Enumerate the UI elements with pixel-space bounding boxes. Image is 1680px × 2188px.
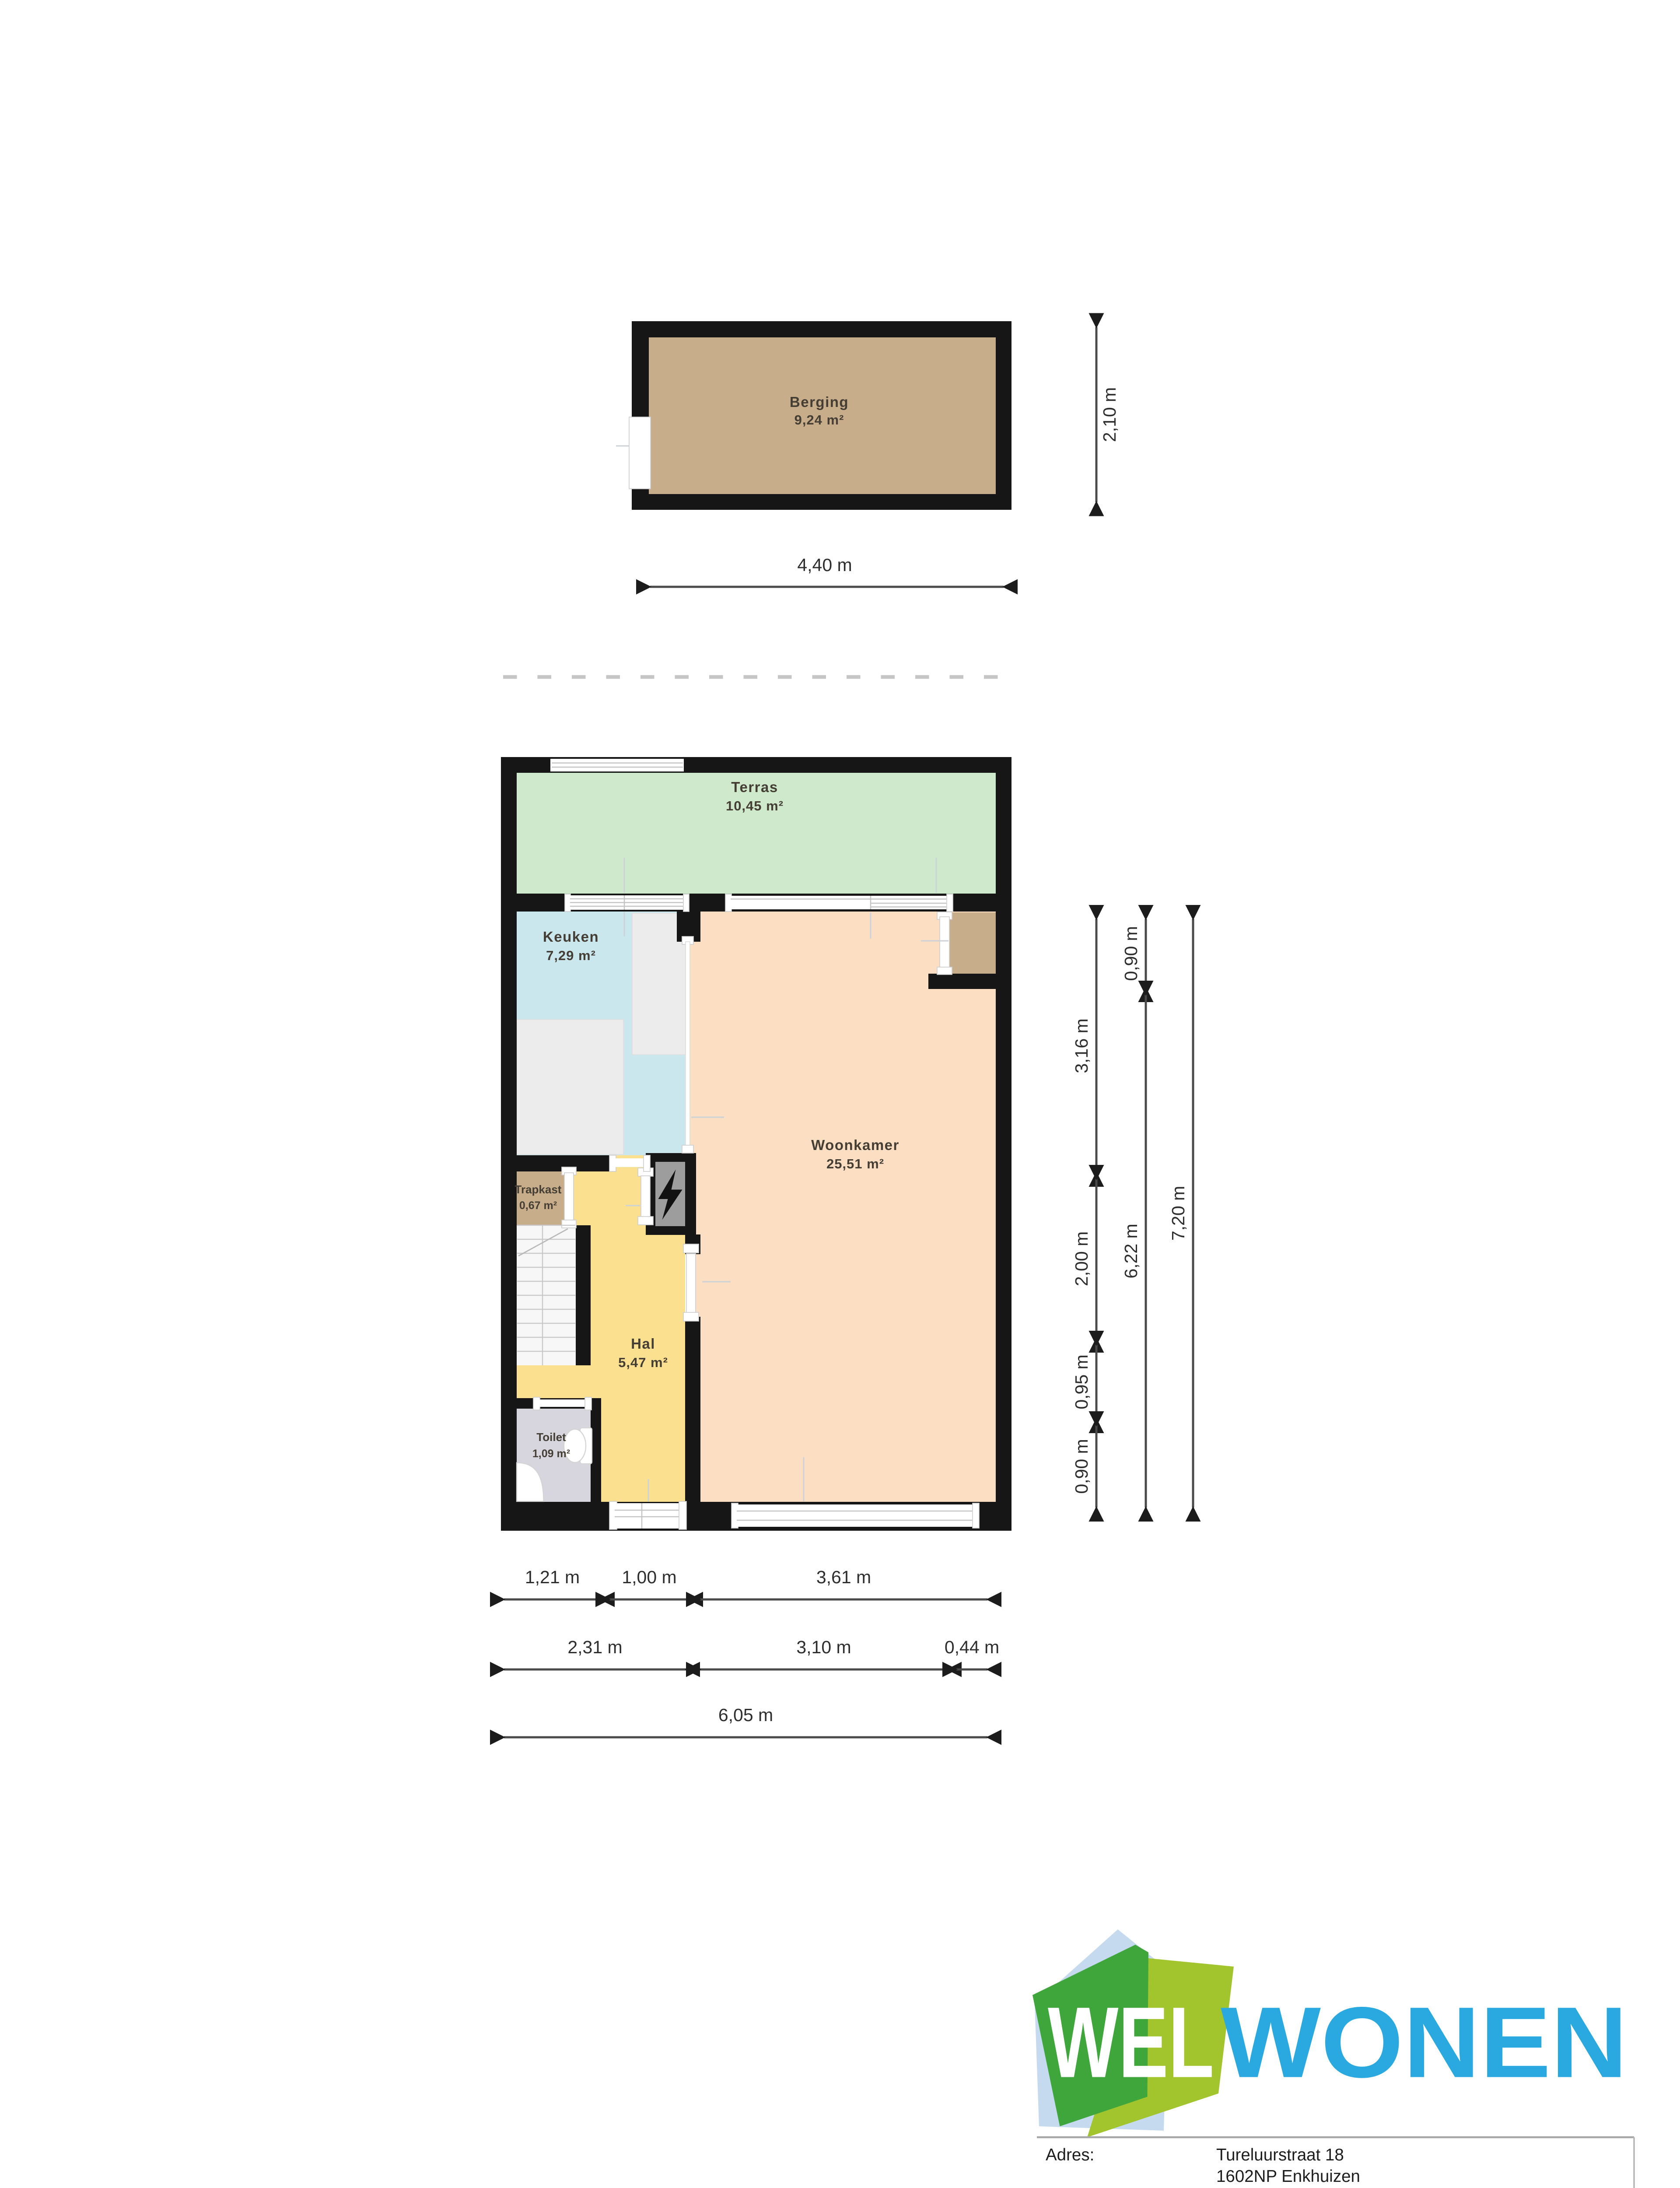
dim-bottom-r2-3: 0,44 m — [945, 1637, 999, 1657]
welwonen-logo: WEL WONEN — [1032, 1929, 1627, 2137]
berging-room-label: Berging — [790, 394, 849, 410]
hal-label: Hal — [631, 1336, 655, 1352]
toilet-label: Toilet — [536, 1431, 566, 1444]
keuken-label: Keuken — [543, 929, 599, 945]
keuken-opening — [613, 1158, 646, 1167]
trapkast-area: 0,67 m² — [519, 1199, 557, 1212]
room-floors — [517, 773, 996, 1502]
floorplan-drawing: Berging 9,24 m² 2,10 m 4,40 m — [0, 0, 1680, 2188]
closet-door — [940, 917, 949, 969]
floorplan-document-page: Berging 9,24 m² 2,10 m 4,40 m — [0, 0, 1680, 2188]
meterkast-door — [641, 1176, 650, 1217]
woonkamer-window — [735, 1504, 974, 1527]
toilet-door — [538, 1399, 589, 1407]
logo-text-wel: WEL — [1048, 1986, 1214, 2099]
dim-bottom-r3-1: 6,05 m — [718, 1705, 773, 1725]
dim-right-inner-2: 2,00 m — [1071, 1231, 1092, 1286]
dim-bottom-r1-1: 1,21 m — [525, 1567, 580, 1587]
toilet-area: 1,09 m² — [532, 1448, 570, 1460]
hal-area: 5,47 m² — [618, 1355, 668, 1370]
berging-door — [629, 417, 651, 489]
dim-right-inner-1: 3,16 m — [1071, 1018, 1092, 1073]
berging-width-dimension: 4,40 m — [797, 555, 852, 575]
woonkamer-floor — [687, 911, 996, 1502]
dim-right-inner-4: 0,90 m — [1071, 1439, 1092, 1494]
adres-label: Adres: — [1046, 2146, 1094, 2164]
dim-bottom-r2-2: 3,10 m — [796, 1637, 851, 1657]
woonkamer-label: Woonkamer — [811, 1137, 899, 1153]
berging-height-dimension: 2,10 m — [1099, 387, 1120, 442]
dim-bottom-r2-1: 2,31 m — [567, 1637, 622, 1657]
dim-bottom-r1-3: 3,61 m — [816, 1567, 871, 1587]
logo-text-wonen: WONEN — [1221, 1986, 1627, 2099]
adres-value1: Tureluurstraat 18 — [1216, 2146, 1344, 2164]
info-table: Adres: Tureluurstraat 18 1602NP Enkhuize… — [1037, 2137, 1634, 2188]
trapkast-door — [564, 1173, 574, 1222]
berging-room-area: 9,24 m² — [794, 412, 844, 428]
closet-floor — [949, 912, 996, 974]
woonkamer-door — [686, 1254, 696, 1313]
bottom-dimension-lines: 1,21 m 1,00 m 3,61 m 2,31 m 3,10 m 0,44 … — [504, 1567, 999, 1737]
keuken-area: 7,29 m² — [546, 948, 596, 963]
woonkamer-area: 25,51 m² — [826, 1156, 884, 1171]
ground-floor-plan: Terras 10,45 m² Keuken 7,29 m² Woonkamer… — [501, 757, 1011, 1531]
trapkast-floor — [517, 1171, 564, 1225]
dim-right-outer: 7,20 m — [1168, 1186, 1188, 1241]
adres-value2: 1602NP Enkhuizen — [1216, 2167, 1360, 2186]
berging-floor-plan: Berging 9,24 m² 2,10 m 4,40 m — [616, 321, 1120, 587]
right-dimension-lines: 3,16 m 2,00 m 0,95 m 0,90 m 0,90 m 6,22 … — [1071, 919, 1193, 1508]
front-door — [613, 1503, 683, 1529]
kitchen-counter-left — [517, 1020, 623, 1154]
dim-right-inner-3: 0,95 m — [1071, 1354, 1092, 1409]
terras-fence — [550, 759, 684, 771]
dim-bottom-r1-2: 1,00 m — [622, 1567, 676, 1587]
keuken-woonkamer-partition — [686, 942, 690, 1148]
dim-right-middle-2: 6,22 m — [1121, 1224, 1141, 1278]
terras-area: 10,45 m² — [726, 798, 784, 813]
dim-right-middle-1: 0,90 m — [1121, 926, 1141, 981]
terras-label: Terras — [731, 779, 778, 795]
trapkast-label: Trapkast — [515, 1183, 562, 1196]
